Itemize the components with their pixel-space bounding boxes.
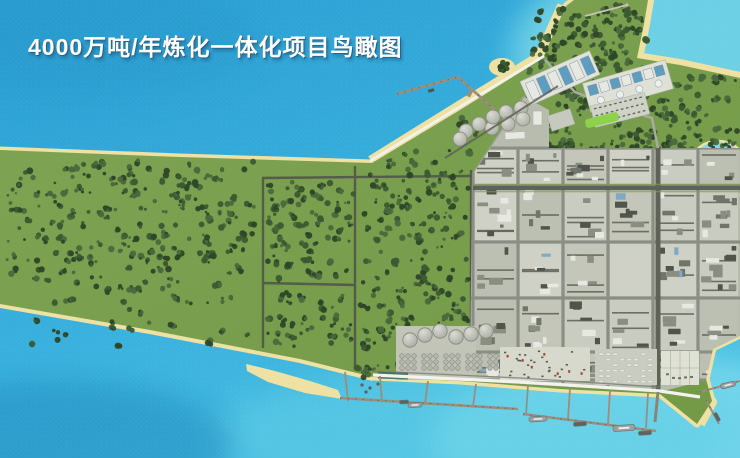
- tree: [266, 332, 269, 335]
- tree: [219, 330, 222, 333]
- tree: [320, 318, 323, 321]
- tree: [7, 240, 10, 243]
- tree: [162, 210, 164, 212]
- tree: [206, 250, 209, 253]
- tree: [384, 202, 390, 208]
- tree: [438, 178, 441, 181]
- tree: [100, 161, 106, 167]
- tree: [627, 133, 633, 139]
- tree: [280, 200, 286, 206]
- tree: [433, 211, 436, 214]
- tree: [34, 275, 40, 281]
- tree: [182, 201, 185, 204]
- tree: [334, 312, 340, 318]
- process-unit: [595, 232, 604, 238]
- tree: [319, 196, 324, 201]
- tree: [428, 283, 431, 286]
- tree: [160, 245, 166, 251]
- storage-tank-small: [450, 354, 455, 359]
- tree: [612, 41, 615, 44]
- tree: [373, 341, 376, 344]
- yard-equipment: [530, 360, 532, 362]
- process-unit: [489, 278, 503, 285]
- tree: [105, 290, 110, 295]
- process-unit: [540, 289, 551, 295]
- tree: [74, 281, 76, 283]
- tree: [15, 192, 17, 194]
- tree: [452, 303, 456, 307]
- tree: [330, 342, 334, 346]
- tree: [546, 45, 549, 48]
- tree: [314, 242, 317, 245]
- tree: [633, 131, 639, 137]
- container-row: [606, 353, 611, 355]
- process-unit: [536, 318, 541, 325]
- tree: [354, 365, 361, 372]
- yard-equipment: [510, 371, 512, 373]
- tree: [299, 188, 303, 192]
- tree: [460, 296, 466, 302]
- tree: [553, 18, 557, 22]
- tree: [306, 256, 313, 263]
- tree: [419, 224, 422, 227]
- tree: [389, 331, 392, 334]
- yard-equipment: [541, 376, 543, 378]
- tree: [284, 244, 287, 247]
- process-unit: [709, 265, 722, 271]
- ship: [408, 402, 422, 407]
- tree: [89, 263, 93, 267]
- tree: [463, 316, 469, 322]
- tree: [614, 28, 617, 31]
- tree: [619, 44, 624, 49]
- tree: [608, 21, 613, 26]
- tree: [17, 183, 20, 186]
- tree: [131, 179, 138, 186]
- tree: [301, 322, 304, 325]
- tree: [395, 289, 398, 292]
- storage-tank-small: [478, 360, 483, 365]
- yard-vehicle: [672, 377, 675, 379]
- storage-tank-large: [433, 324, 447, 338]
- tree: [97, 240, 100, 243]
- process-unit: [542, 254, 551, 257]
- tree: [682, 135, 687, 140]
- process-unit: [677, 229, 683, 236]
- tree: [241, 248, 245, 252]
- tree: [387, 335, 391, 339]
- tree: [30, 175, 35, 180]
- tree: [74, 188, 78, 192]
- tree: [617, 67, 623, 73]
- storage-tank-large: [403, 333, 417, 347]
- tree: [188, 164, 191, 167]
- tree: [163, 261, 168, 266]
- storage-tank-small: [478, 354, 483, 359]
- tree: [172, 296, 177, 301]
- spherical-tank: [453, 132, 467, 146]
- tree: [321, 307, 327, 313]
- tree: [594, 56, 600, 62]
- tree: [427, 215, 432, 220]
- tree: [560, 137, 566, 143]
- process-unit: [497, 215, 511, 222]
- container-row: [634, 381, 639, 383]
- tree: [374, 201, 377, 204]
- tree: [185, 195, 191, 201]
- tree: [390, 193, 395, 198]
- tree: [220, 300, 224, 304]
- tree: [128, 236, 131, 239]
- tree: [425, 298, 431, 304]
- tree: [610, 13, 615, 18]
- process-unit: [488, 152, 500, 157]
- process-unit: [592, 177, 598, 181]
- tree: [163, 256, 168, 261]
- yard-equipment: [504, 352, 506, 354]
- process-unit: [663, 159, 671, 165]
- tree: [267, 215, 271, 219]
- tree: [26, 259, 29, 262]
- storage-tank-small: [456, 354, 461, 359]
- industrial-plot: [655, 150, 696, 184]
- tree: [338, 228, 343, 233]
- tree: [275, 207, 278, 210]
- pipe-rack: [612, 170, 649, 172]
- container-row: [627, 381, 632, 383]
- process-unit: [716, 199, 730, 203]
- tree: [711, 76, 715, 80]
- tree: [331, 306, 334, 309]
- tree: [377, 364, 380, 367]
- tree: [306, 328, 310, 332]
- tree: [611, 140, 614, 143]
- tree: [61, 220, 65, 224]
- tree: [626, 18, 631, 23]
- tree: [149, 169, 152, 172]
- storage-tank-small: [428, 366, 433, 371]
- tree: [579, 106, 583, 110]
- tree: [8, 271, 14, 277]
- tree: [304, 317, 308, 321]
- tree: [228, 271, 232, 275]
- tree: [139, 257, 142, 260]
- process-unit: [502, 169, 512, 176]
- tree: [405, 321, 410, 326]
- tree: [686, 121, 690, 125]
- tree: [446, 276, 452, 282]
- tree: [339, 189, 344, 194]
- tree: [35, 235, 40, 240]
- process-unit: [595, 338, 600, 344]
- white-tower: [533, 111, 542, 125]
- tree: [280, 244, 283, 247]
- tree: [159, 179, 165, 185]
- tree: [151, 234, 157, 240]
- tree: [118, 284, 122, 288]
- storage-tank-small: [494, 354, 499, 359]
- tree: [272, 254, 275, 257]
- tree: [74, 164, 77, 167]
- tree: [82, 163, 86, 167]
- process-unit: [621, 160, 625, 167]
- tree: [613, 125, 616, 128]
- tree: [371, 293, 376, 298]
- tree: [365, 338, 369, 342]
- tree: [473, 132, 478, 137]
- tree: [220, 168, 224, 172]
- tree: [391, 326, 395, 330]
- process-unit: [587, 256, 594, 263]
- tree: [301, 223, 306, 228]
- storage-tank-small: [422, 354, 427, 359]
- process-unit: [583, 198, 590, 203]
- tree: [127, 164, 132, 169]
- yard-equipment: [509, 375, 511, 377]
- container-row: [648, 359, 653, 361]
- tree: [287, 293, 292, 298]
- pipe-rack: [567, 291, 604, 293]
- process-unit: [477, 283, 485, 288]
- tree: [399, 289, 403, 293]
- container-row: [606, 375, 611, 377]
- tree: [34, 257, 40, 263]
- yard-equipment: [519, 360, 521, 362]
- tree: [327, 180, 333, 186]
- tree: [560, 6, 567, 13]
- spherical-tank: [486, 110, 500, 124]
- storage-tank-small: [450, 366, 455, 371]
- tree: [658, 114, 662, 118]
- ship: [573, 422, 586, 427]
- process-unit: [500, 225, 504, 228]
- tree: [29, 341, 35, 347]
- tree: [7, 194, 10, 197]
- tree: [176, 191, 180, 195]
- tree: [699, 139, 702, 142]
- tree: [89, 254, 93, 258]
- tree: [428, 227, 435, 234]
- process-unit: [723, 326, 729, 329]
- process-unit: [662, 211, 675, 216]
- tree: [569, 16, 574, 21]
- small-island: [489, 58, 515, 76]
- tree: [406, 205, 409, 208]
- tree: [265, 317, 270, 322]
- process-unit: [707, 162, 715, 166]
- ship: [529, 416, 547, 422]
- process-unit: [580, 318, 592, 321]
- tree: [538, 63, 543, 68]
- tree: [290, 202, 293, 205]
- tree: [43, 235, 48, 240]
- tree: [431, 284, 435, 288]
- pipe-rack: [612, 167, 649, 169]
- tree: [294, 191, 300, 197]
- tree: [421, 264, 428, 271]
- tree: [144, 208, 147, 211]
- crane: [581, 372, 583, 375]
- storage-tank-small: [472, 354, 477, 359]
- storage-tank-small: [494, 360, 499, 365]
- process-unit: [477, 275, 484, 280]
- tree: [449, 174, 456, 181]
- pipe-rack: [612, 328, 649, 330]
- tree: [309, 273, 312, 276]
- process-unit: [732, 198, 737, 205]
- storage-tank-small: [400, 360, 405, 365]
- ship-hull: [399, 400, 408, 404]
- storage-tank-small: [406, 366, 411, 371]
- tree: [465, 280, 468, 283]
- tree: [558, 144, 561, 147]
- tree: [306, 232, 313, 239]
- tree: [231, 194, 237, 200]
- container-row: [599, 375, 604, 377]
- tree: [228, 295, 233, 300]
- tree: [610, 143, 613, 146]
- tree: [140, 311, 143, 314]
- tree: [406, 172, 413, 179]
- tree: [436, 290, 442, 296]
- tree: [668, 142, 672, 146]
- yard-equipment: [524, 354, 526, 356]
- crane: [543, 353, 545, 356]
- process-unit: [613, 338, 622, 344]
- tree: [103, 172, 107, 176]
- tree: [436, 191, 440, 195]
- tree: [634, 143, 639, 148]
- tree: [679, 105, 685, 111]
- tree: [86, 174, 91, 179]
- process-unit: [615, 202, 627, 208]
- storage-tank-small: [400, 366, 405, 371]
- tree: [724, 143, 728, 147]
- tree: [530, 51, 535, 56]
- tree: [202, 234, 205, 237]
- tree: [332, 334, 336, 338]
- tree: [700, 74, 706, 80]
- tree: [729, 140, 732, 143]
- tree: [379, 250, 383, 254]
- process-unit: [537, 268, 545, 271]
- tree: [464, 257, 469, 262]
- storage-tank-small: [434, 360, 439, 365]
- tree: [623, 8, 628, 13]
- tree: [455, 187, 458, 190]
- tree: [628, 60, 633, 65]
- tree: [52, 299, 58, 305]
- container-row: [641, 353, 646, 355]
- tree: [409, 191, 412, 194]
- tree: [615, 14, 618, 17]
- tree: [575, 13, 579, 17]
- tree: [609, 49, 612, 52]
- process-unit: [580, 222, 591, 228]
- tree: [415, 233, 418, 236]
- tree: [391, 162, 396, 167]
- tree: [404, 195, 409, 200]
- tree: [290, 180, 295, 185]
- tree: [591, 43, 595, 47]
- tree: [402, 287, 404, 289]
- tree: [324, 200, 330, 206]
- tree: [401, 317, 405, 321]
- tree: [704, 114, 707, 117]
- tree: [564, 129, 568, 133]
- tree: [648, 133, 651, 136]
- tree: [274, 243, 277, 246]
- pipe-rack: [657, 313, 694, 315]
- tree: [367, 306, 371, 310]
- tree: [425, 179, 429, 183]
- process-unit: [577, 173, 584, 177]
- ship: [399, 400, 408, 404]
- tree: [270, 197, 274, 201]
- tree: [265, 258, 271, 264]
- tree: [443, 238, 446, 241]
- tree: [545, 35, 549, 39]
- tree: [327, 258, 334, 265]
- process-unit: [666, 266, 674, 271]
- tree: [176, 280, 180, 284]
- process-unit: [477, 203, 488, 207]
- tree: [376, 286, 381, 291]
- tree: [230, 248, 233, 251]
- tree: [388, 158, 392, 162]
- tree: [642, 36, 649, 43]
- tree: [81, 187, 84, 190]
- process-unit: [703, 230, 708, 238]
- yard-equipment: [517, 360, 519, 362]
- tree: [593, 31, 599, 37]
- tree: [227, 211, 233, 217]
- tree: [734, 128, 740, 134]
- tree: [273, 213, 276, 216]
- process-unit: [536, 210, 541, 218]
- tree: [76, 282, 79, 285]
- tree: [398, 195, 400, 197]
- tree: [300, 257, 304, 261]
- crane: [507, 355, 509, 358]
- tree: [53, 250, 59, 256]
- tree: [173, 246, 176, 249]
- container-row: [599, 353, 604, 355]
- tree: [363, 304, 367, 308]
- tree: [205, 173, 210, 178]
- container-row: [599, 381, 604, 383]
- tree: [159, 223, 165, 229]
- process-unit: [660, 192, 664, 199]
- storage-tank-small: [488, 354, 493, 359]
- pipe-rack: [657, 230, 694, 232]
- tree: [98, 212, 104, 218]
- tree: [206, 212, 209, 215]
- process-unit: [729, 284, 737, 290]
- tree: [77, 254, 82, 259]
- tree: [577, 97, 583, 103]
- tree: [37, 205, 40, 208]
- tree: [420, 257, 423, 260]
- process-unit: [670, 342, 677, 346]
- tree: [370, 182, 377, 189]
- tree: [164, 234, 168, 238]
- process-unit: [571, 256, 576, 261]
- shore-rock: [364, 390, 367, 393]
- tree: [71, 297, 76, 302]
- tree: [277, 333, 280, 336]
- pipe-rack: [702, 154, 736, 156]
